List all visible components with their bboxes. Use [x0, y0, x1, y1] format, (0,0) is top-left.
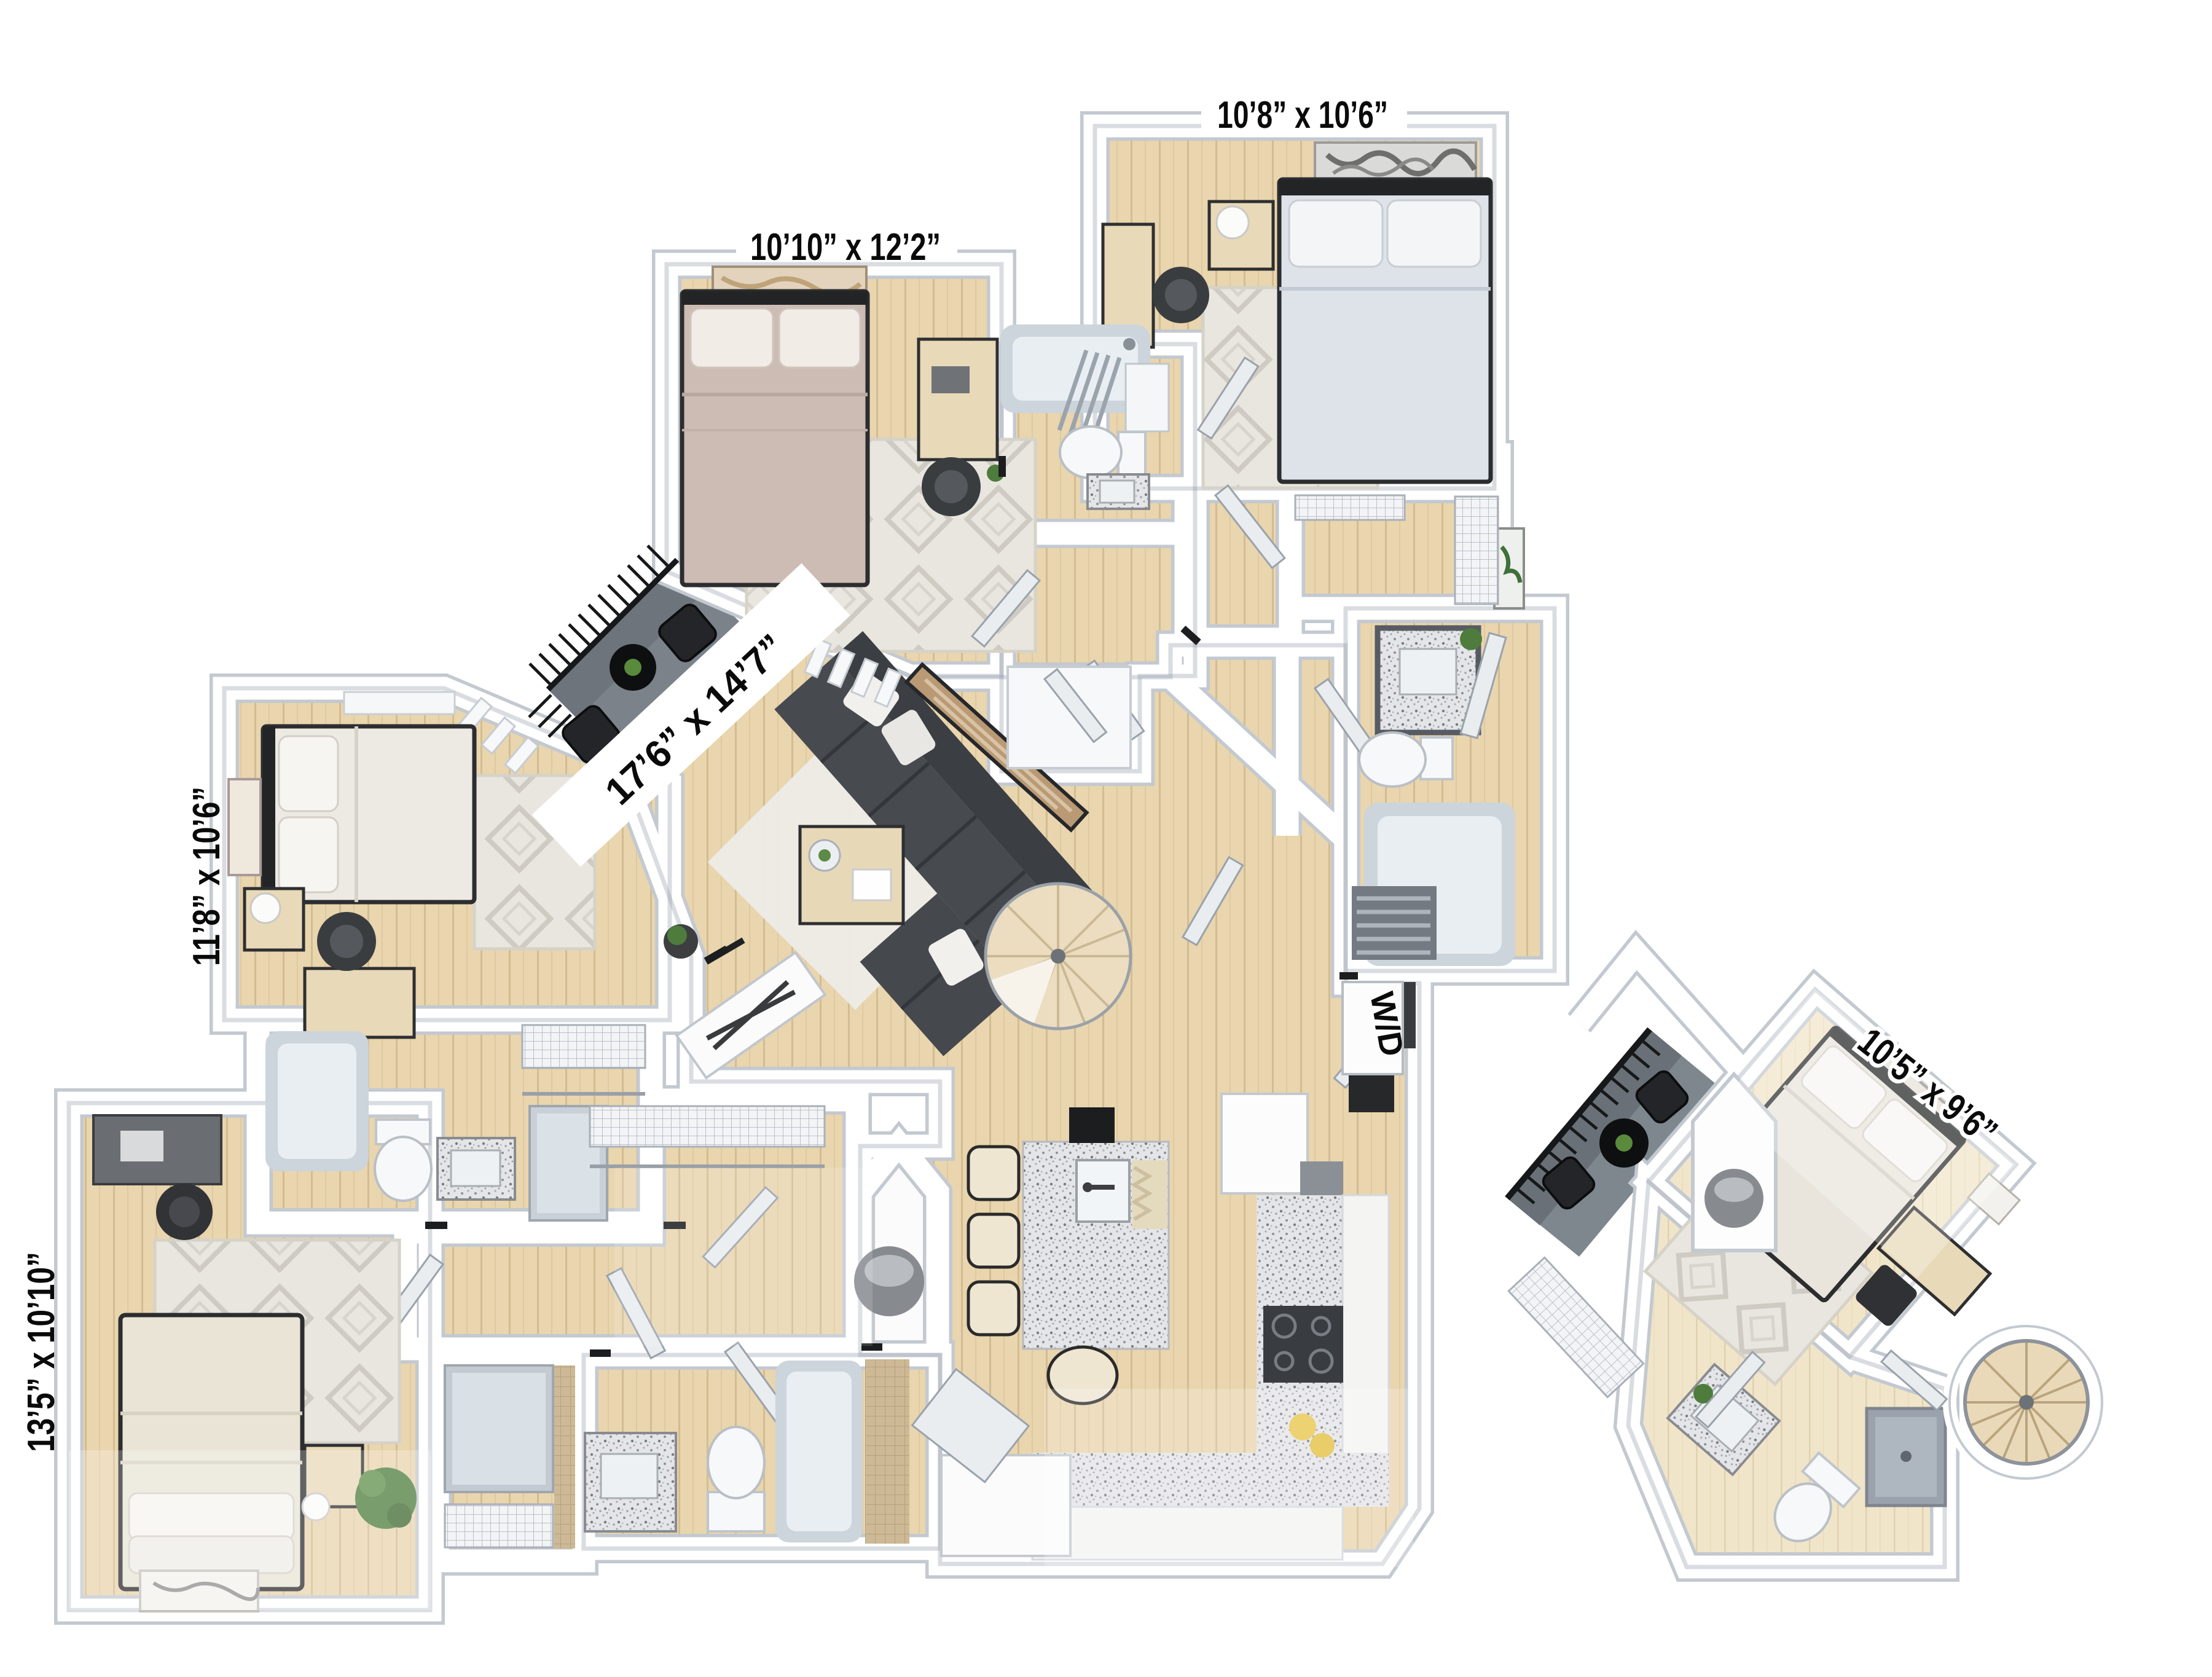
- svg-text:10’8” x 10’6”: 10’8” x 10’6”: [1217, 94, 1388, 136]
- svg-text:11’8” x 10’6”: 11’8” x 10’6”: [186, 787, 228, 966]
- svg-text:13’5” x 10’10”: 13’5” x 10’10”: [20, 1252, 63, 1452]
- svg-text:10’10” x 12’2”: 10’10” x 12’2”: [750, 226, 941, 269]
